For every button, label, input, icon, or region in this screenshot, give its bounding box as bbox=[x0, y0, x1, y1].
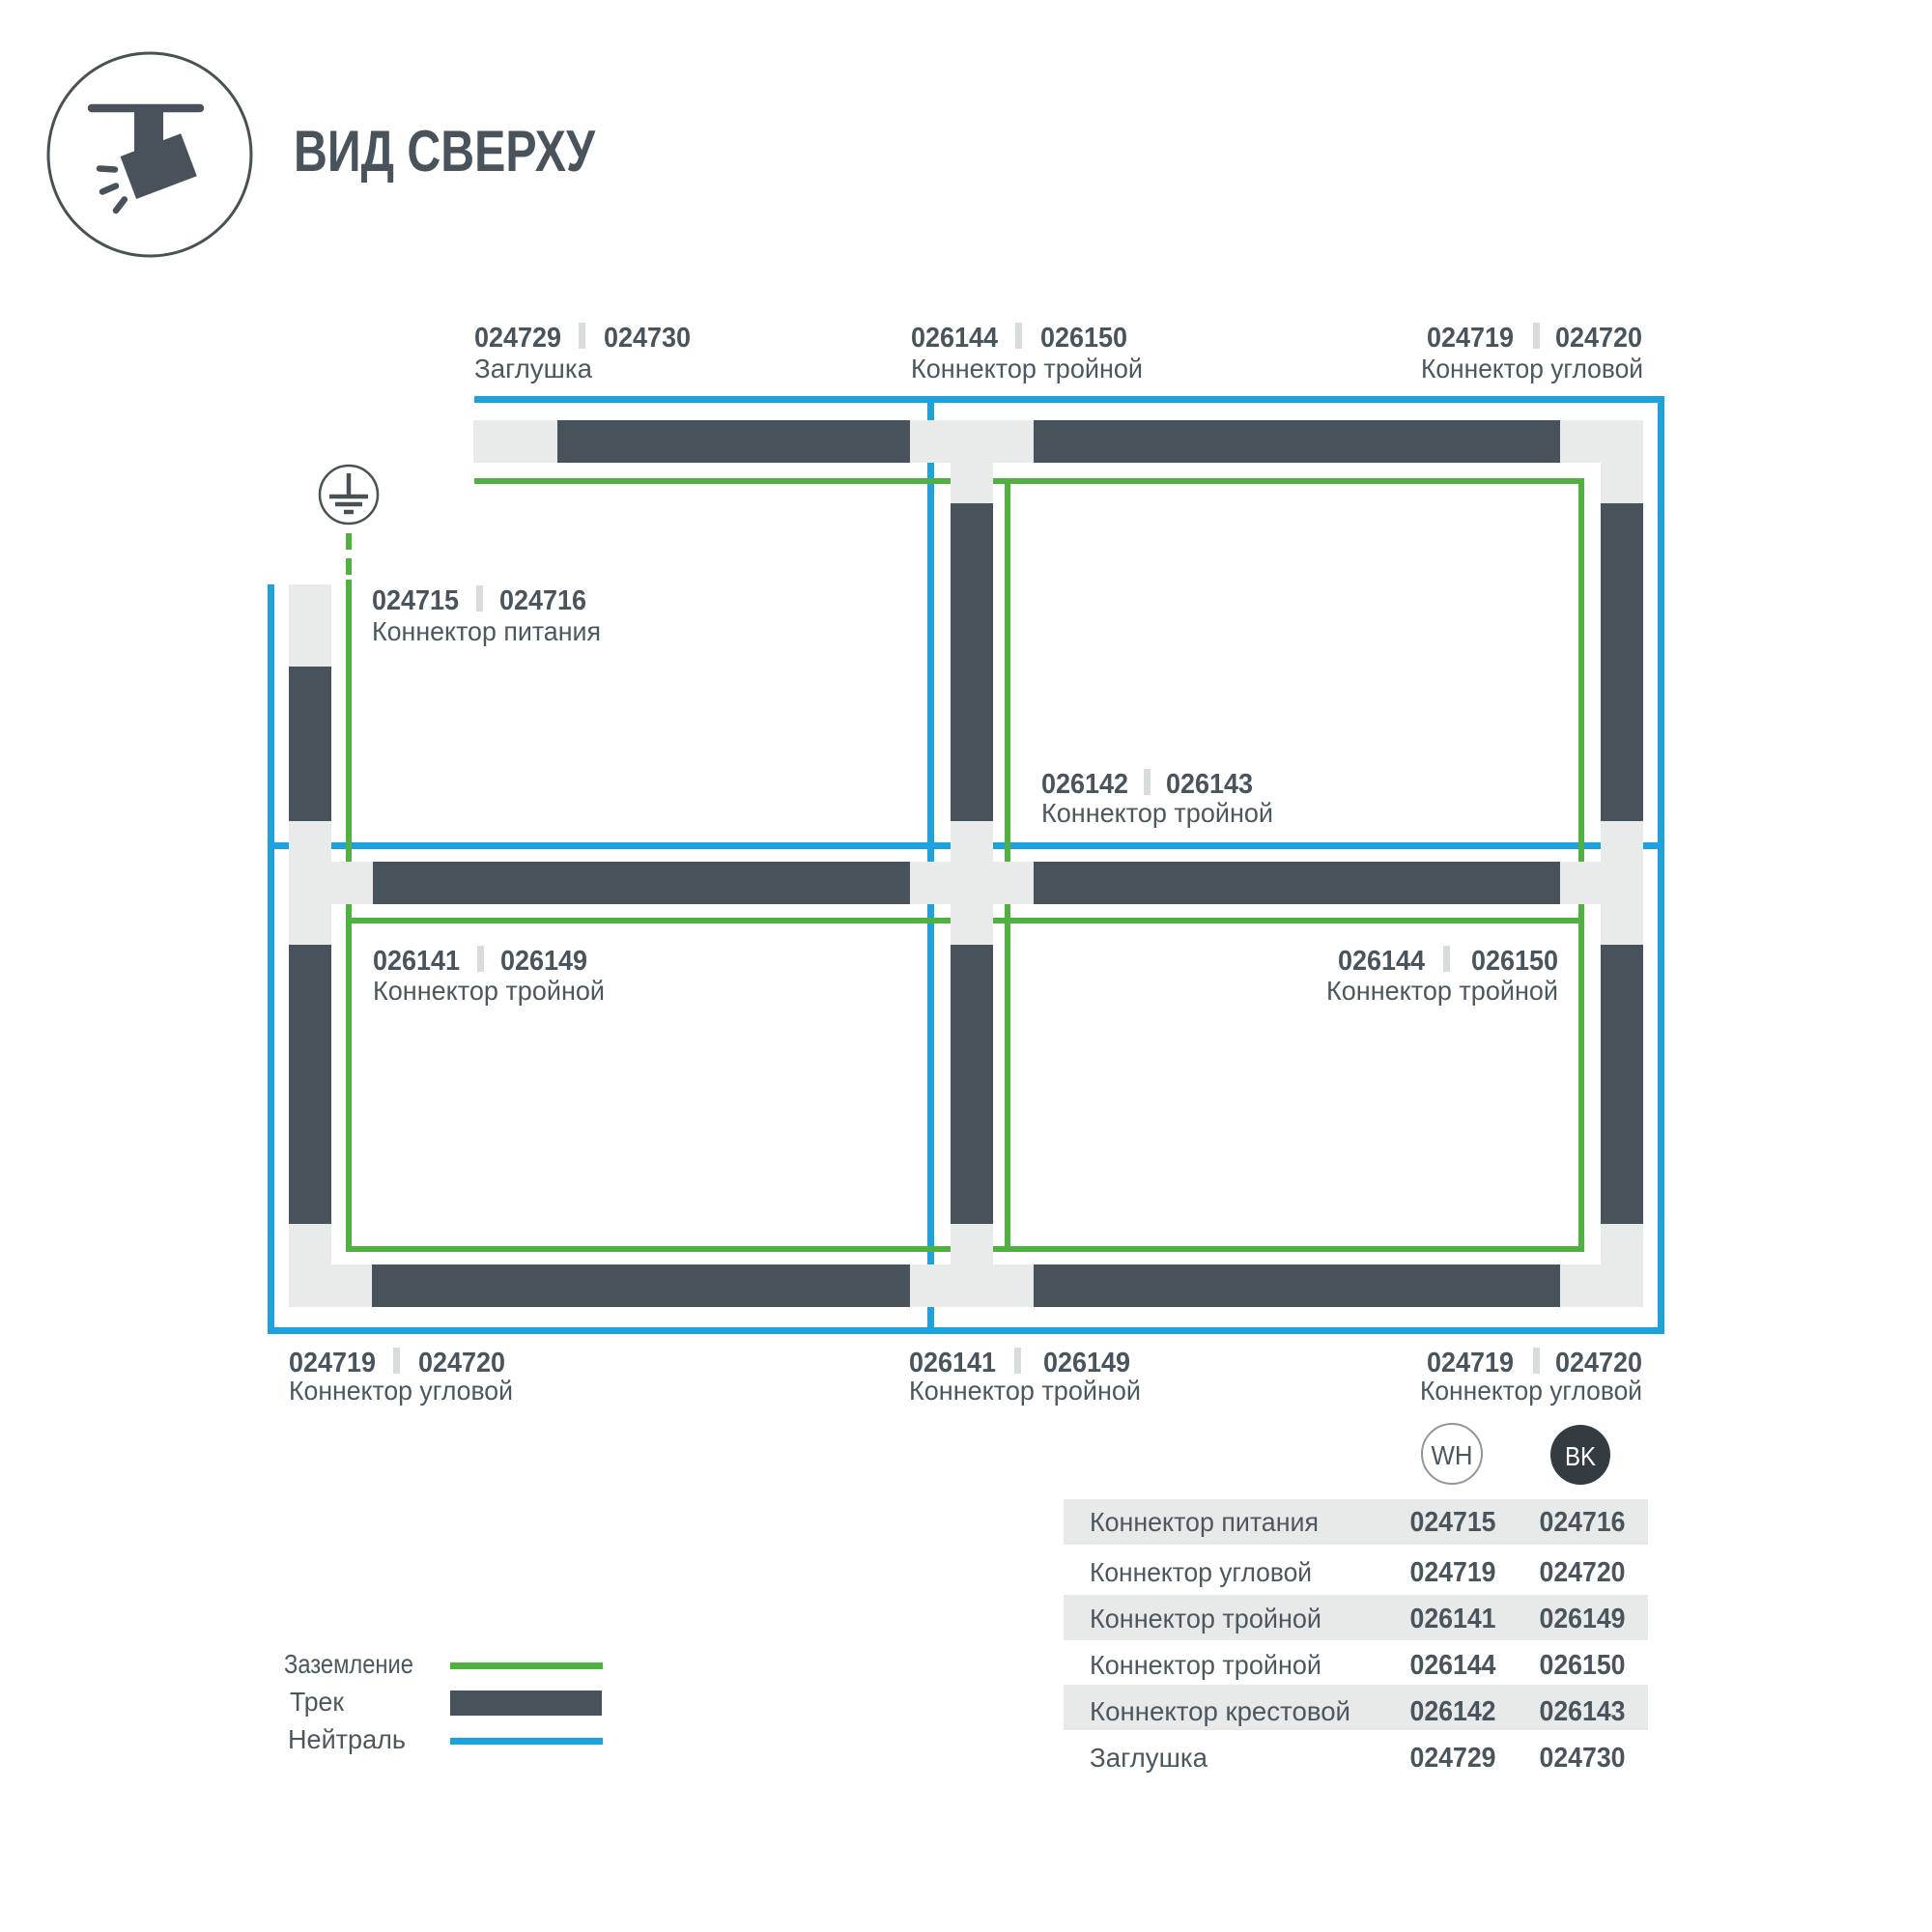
svg-text:024715: 024715 bbox=[1410, 1507, 1496, 1538]
svg-text:026141: 026141 bbox=[909, 1348, 996, 1378]
svg-text:024715: 024715 bbox=[372, 585, 459, 616]
svg-text:Коннектор питания: Коннектор питания bbox=[372, 616, 601, 646]
svg-text:Нейтраль: Нейтраль bbox=[288, 1724, 406, 1754]
svg-text:024720: 024720 bbox=[1540, 1557, 1626, 1588]
svg-text:Трек: Трек bbox=[290, 1687, 345, 1717]
svg-text:Заглушка: Заглушка bbox=[474, 354, 592, 384]
svg-text:024720: 024720 bbox=[1555, 1348, 1642, 1378]
svg-text:026142: 026142 bbox=[1410, 1696, 1496, 1727]
svg-text:024729: 024729 bbox=[474, 323, 561, 354]
svg-text:Коннектор крестовой: Коннектор крестовой bbox=[1090, 1696, 1350, 1726]
svg-text:024716: 024716 bbox=[499, 585, 586, 616]
svg-text:Коннектор угловой: Коннектор угловой bbox=[1420, 1376, 1642, 1406]
svg-text:024719: 024719 bbox=[1410, 1557, 1496, 1588]
svg-text:Коннектор тройной: Коннектор тройной bbox=[373, 976, 605, 1006]
svg-text:024716: 024716 bbox=[1540, 1507, 1626, 1538]
svg-text:026143: 026143 bbox=[1166, 769, 1253, 800]
svg-text:BK: BK bbox=[1565, 1441, 1596, 1471]
svg-text:024729: 024729 bbox=[1410, 1743, 1496, 1774]
svg-text:Коннектор угловой: Коннектор угловой bbox=[1421, 354, 1643, 384]
svg-text:026144: 026144 bbox=[1410, 1650, 1496, 1681]
svg-text:024720: 024720 bbox=[1555, 323, 1642, 354]
svg-text:Коннектор тройной: Коннектор тройной bbox=[1326, 976, 1558, 1006]
svg-text:026149: 026149 bbox=[1043, 1348, 1130, 1378]
svg-text:Коннектор тройной: Коннектор тройной bbox=[1090, 1650, 1321, 1680]
svg-text:026142: 026142 bbox=[1041, 769, 1128, 800]
svg-text:024730: 024730 bbox=[1540, 1743, 1626, 1774]
svg-text:Заглушка: Заглушка bbox=[1090, 1743, 1207, 1773]
svg-text:026149: 026149 bbox=[500, 946, 587, 977]
svg-text:Коннектор тройной: Коннектор тройной bbox=[1090, 1604, 1321, 1634]
svg-text:Коннектор тройной: Коннектор тройной bbox=[1041, 798, 1273, 828]
svg-text:WH: WH bbox=[1432, 1440, 1473, 1470]
svg-text:026144: 026144 bbox=[1338, 946, 1425, 977]
svg-text:Коннектор тройной: Коннектор тройной bbox=[909, 1376, 1141, 1406]
svg-text:024719: 024719 bbox=[1427, 323, 1514, 354]
svg-text:026141: 026141 bbox=[1410, 1604, 1496, 1634]
svg-text:024719: 024719 bbox=[289, 1348, 376, 1378]
svg-text:Коннектор питания: Коннектор питания bbox=[1090, 1507, 1319, 1537]
svg-text:024730: 024730 bbox=[604, 323, 691, 354]
svg-text:Коннектор угловой: Коннектор угловой bbox=[1090, 1557, 1312, 1587]
svg-text:Коннектор тройной: Коннектор тройной bbox=[911, 354, 1143, 384]
svg-text:ВИД СВЕРХУ: ВИД СВЕРХУ bbox=[294, 119, 596, 184]
svg-text:026141: 026141 bbox=[373, 946, 460, 977]
svg-text:026143: 026143 bbox=[1540, 1696, 1626, 1727]
svg-text:026150: 026150 bbox=[1471, 946, 1558, 977]
svg-text:024719: 024719 bbox=[1427, 1348, 1514, 1378]
svg-text:024720: 024720 bbox=[418, 1348, 505, 1378]
svg-text:Коннектор угловой: Коннектор угловой bbox=[289, 1376, 513, 1406]
svg-text:026150: 026150 bbox=[1540, 1650, 1626, 1681]
svg-text:026150: 026150 bbox=[1040, 323, 1127, 354]
svg-text:026144: 026144 bbox=[911, 323, 998, 354]
svg-text:026149: 026149 bbox=[1540, 1604, 1626, 1634]
svg-text:Заземление: Заземление bbox=[284, 1649, 413, 1679]
